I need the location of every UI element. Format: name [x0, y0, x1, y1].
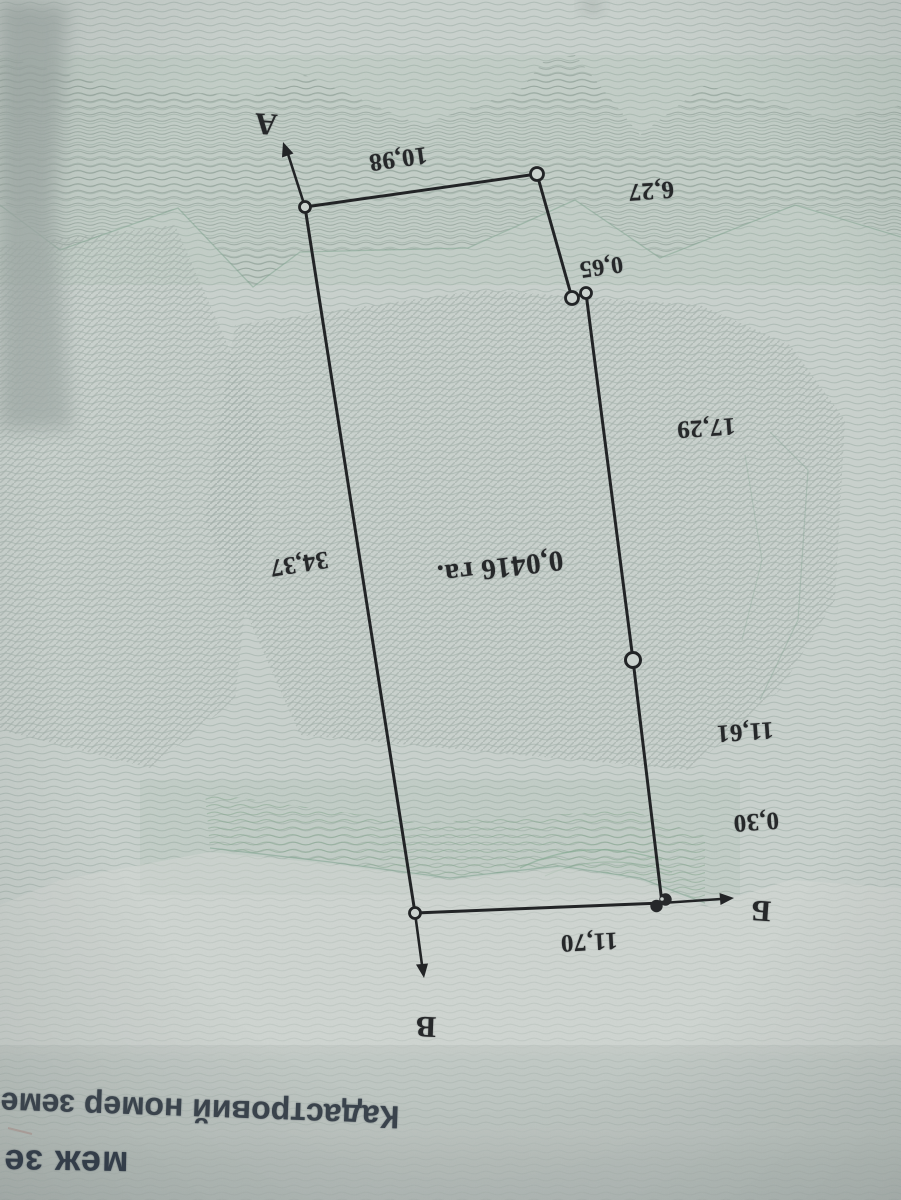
- vertex-v-label: В: [415, 1009, 436, 1044]
- boundaries-heading-fragment: меж зе: [3, 1141, 129, 1185]
- dimension-right-upper-label: 17,29: [676, 411, 737, 443]
- arrow-line-v: [415, 913, 422, 965]
- arrowhead-b: [720, 893, 735, 905]
- vertex-a-label: А: [254, 105, 279, 142]
- survey-point: [566, 292, 579, 305]
- survey-point: [300, 202, 311, 213]
- parcel-boundary: [305, 174, 662, 913]
- vertex-b-label: Б: [750, 892, 772, 927]
- survey-point: [626, 653, 641, 668]
- survey-point: [410, 908, 421, 919]
- dimension-corner-small-label: 0,30: [732, 805, 780, 836]
- parcel-drawing: [0, 0, 901, 1200]
- arrowhead-a: [282, 142, 294, 158]
- survey-point-hole: [660, 897, 664, 901]
- survey-point: [531, 168, 544, 181]
- arrowhead-v: [416, 964, 428, 979]
- survey-point: [581, 288, 592, 299]
- dimension-bottom-label: 11,70: [560, 926, 619, 957]
- photographed-cadastral-plan: А 10,98 6,27 0,65 17,29 34,37 0,0416 га.…: [0, 0, 901, 1200]
- dimension-right-lower-label: 11,61: [715, 715, 774, 747]
- dimension-upper-right-label: 6,27: [627, 174, 675, 205]
- arrow-line-a: [288, 154, 305, 207]
